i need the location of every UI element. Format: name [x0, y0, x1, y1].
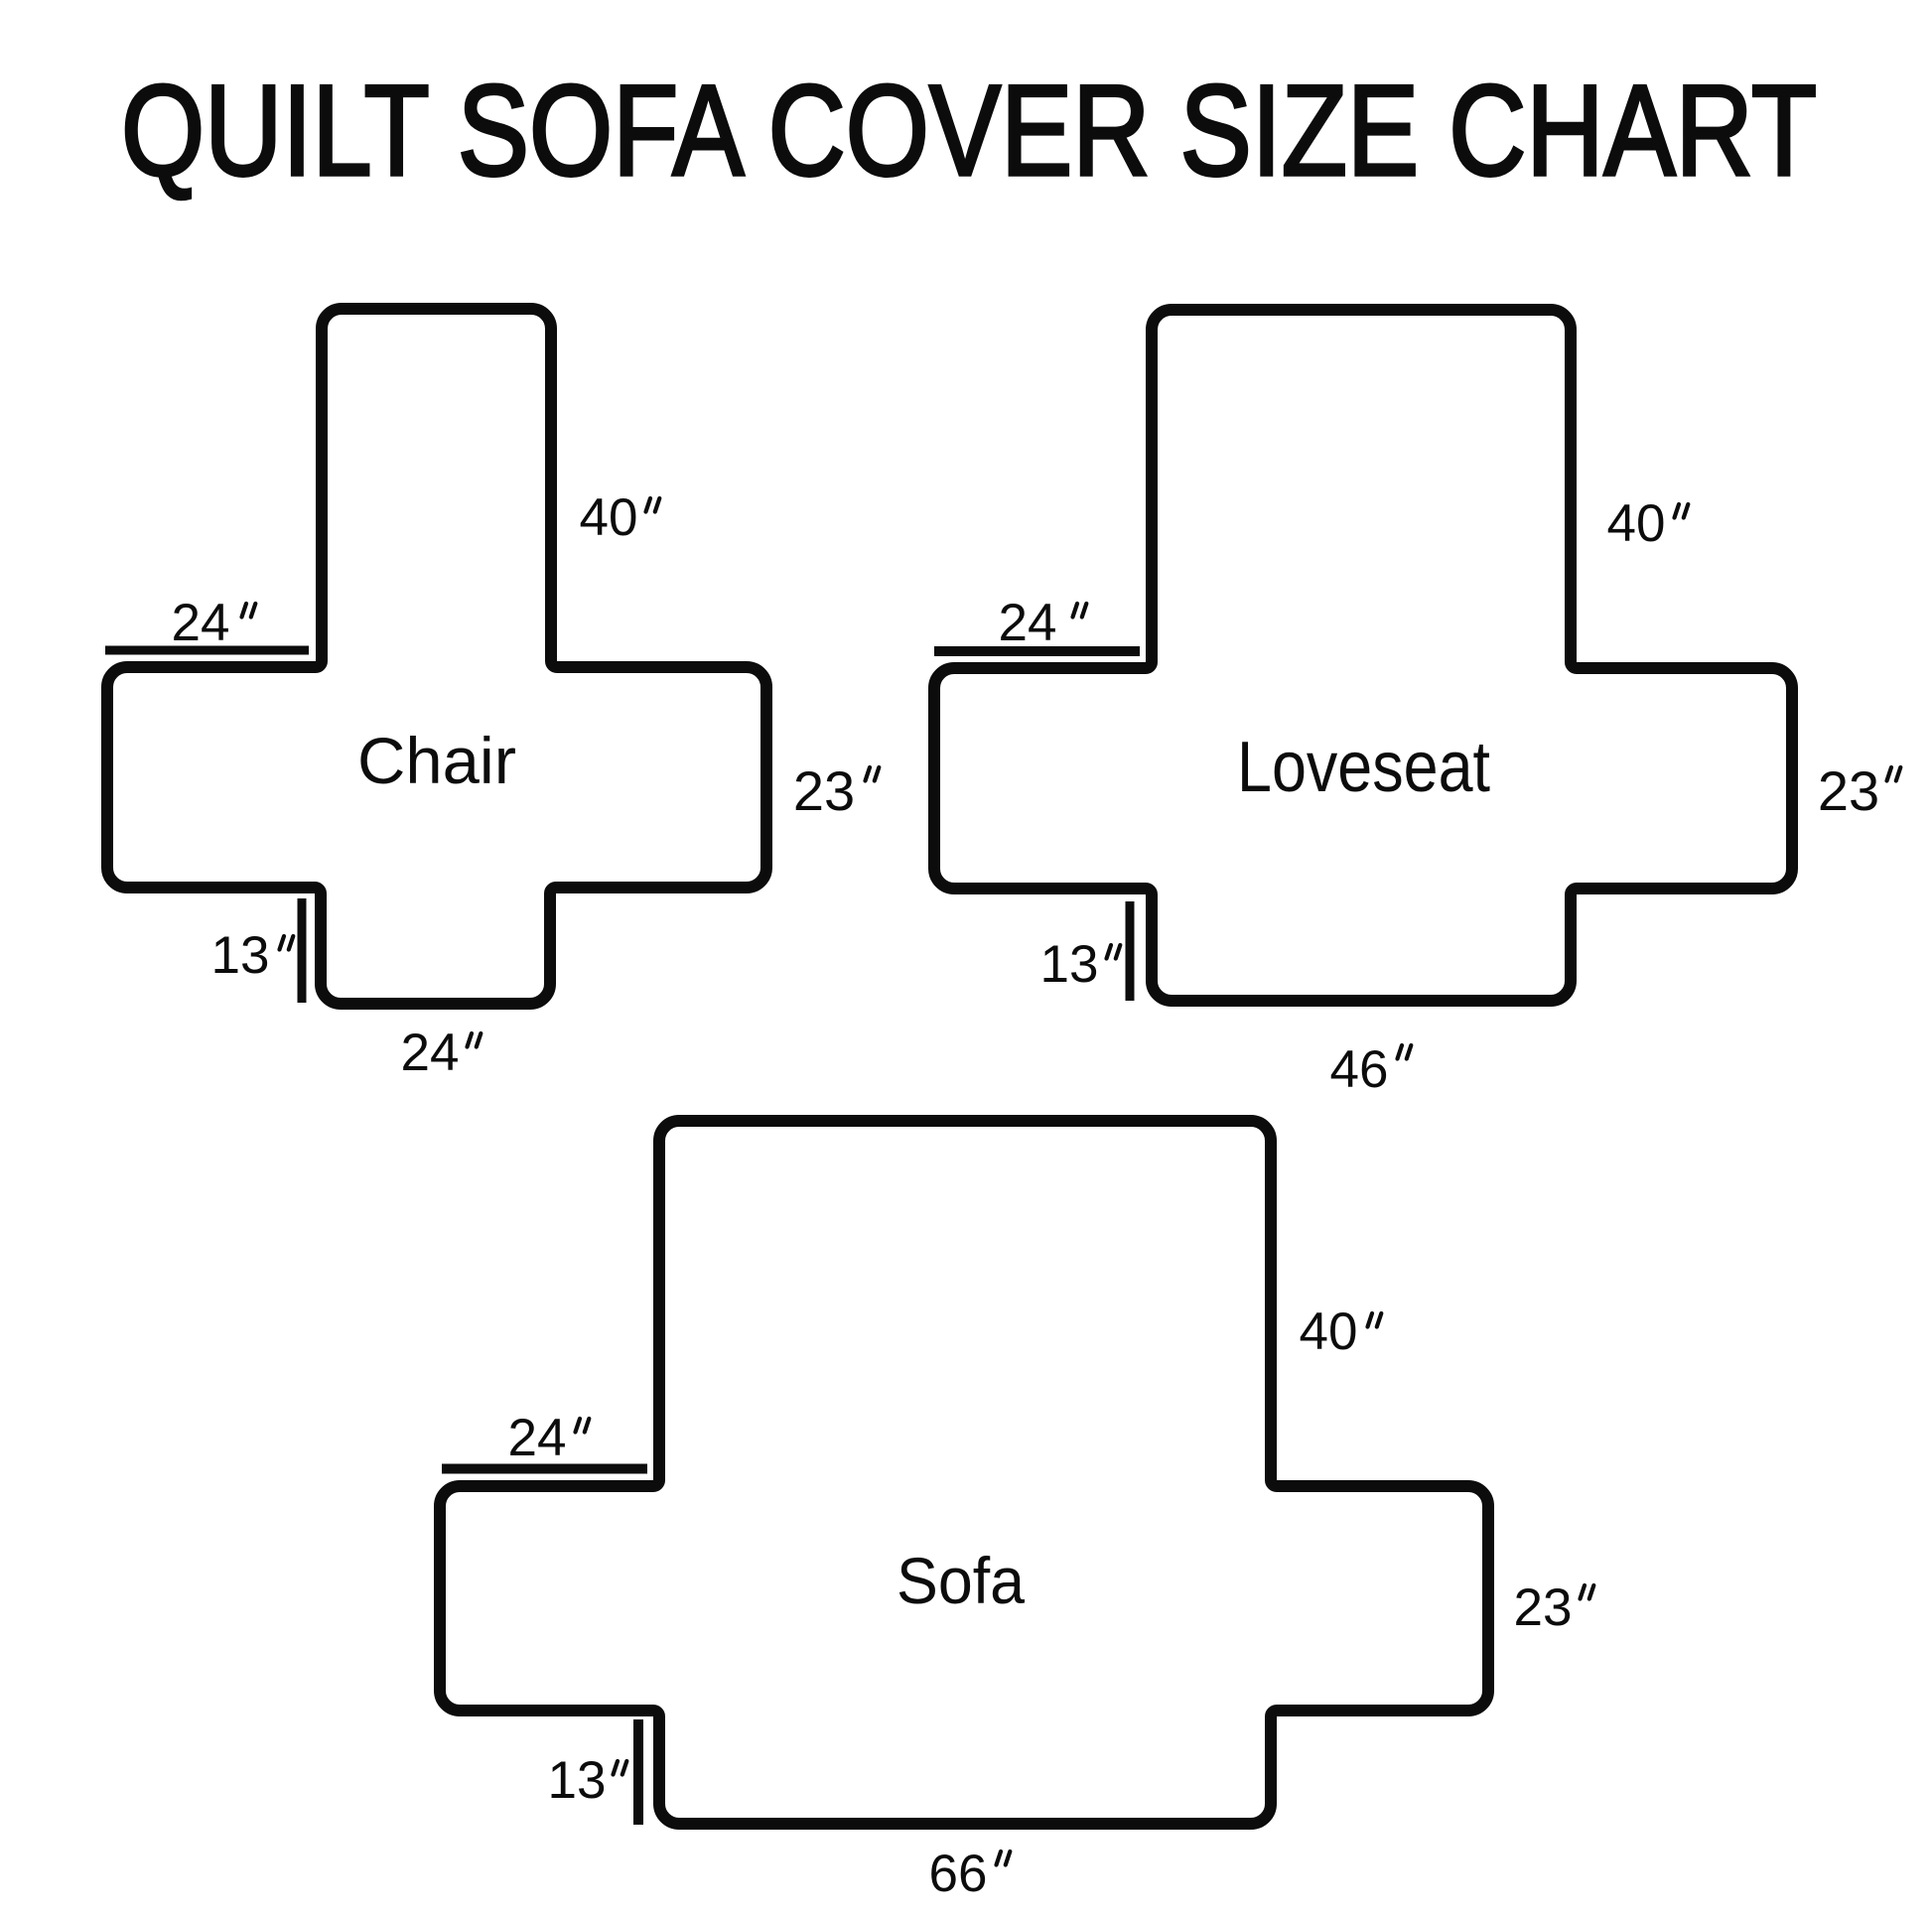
- svg-text:24: 24: [999, 594, 1057, 652]
- svg-text:13: 13: [548, 1751, 607, 1810]
- svg-text:66: 66: [929, 1845, 988, 1903]
- svg-text:46: 46: [1330, 1040, 1389, 1099]
- svg-text:Sofa: Sofa: [897, 1544, 1025, 1617]
- svg-text:23: 23: [1818, 759, 1879, 822]
- svg-text:40: 40: [1607, 494, 1666, 553]
- svg-text:13: 13: [1040, 935, 1099, 994]
- svg-text:40: 40: [580, 488, 638, 547]
- svg-text:13: 13: [211, 926, 270, 985]
- svg-text:Loveseat: Loveseat: [1237, 728, 1490, 807]
- svg-text:24: 24: [401, 1024, 460, 1082]
- svg-text:23: 23: [793, 759, 855, 822]
- svg-text:23: 23: [1514, 1578, 1573, 1637]
- svg-text:QUILT SOFA COVER SIZE CHART: QUILT SOFA COVER SIZE CHART: [121, 58, 1817, 203]
- svg-text:24: 24: [172, 594, 230, 652]
- svg-text:24: 24: [508, 1409, 567, 1467]
- svg-text:Chair: Chair: [357, 724, 516, 797]
- svg-text:40: 40: [1300, 1302, 1358, 1361]
